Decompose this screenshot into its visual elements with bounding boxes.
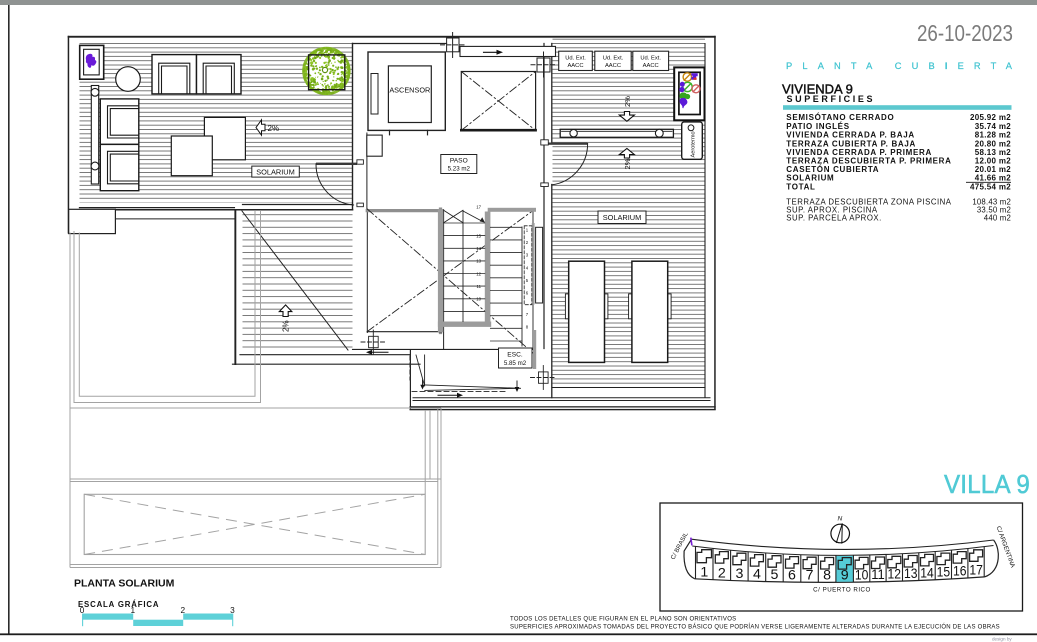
- svg-text:0: 0: [80, 605, 85, 615]
- svg-text:1: 1: [130, 605, 135, 615]
- svg-text:11: 11: [871, 567, 885, 583]
- svg-text:SUP. PARCELA APROX.: SUP. PARCELA APROX.: [786, 214, 881, 223]
- svg-text:Ud. Ext.: Ud. Ext.: [603, 55, 624, 61]
- svg-text:C/ PUERTO RICO: C/ PUERTO RICO: [813, 587, 871, 594]
- svg-text:PLANTA SOLARIUM: PLANTA SOLARIUM: [74, 578, 175, 590]
- svg-text:6: 6: [788, 567, 796, 583]
- svg-text:10: 10: [855, 567, 869, 583]
- svg-text:SOLARIUM: SOLARIUM: [786, 174, 834, 183]
- svg-text:12: 12: [476, 271, 481, 276]
- svg-text:ESCALA GRÁFICA: ESCALA GRÁFICA: [78, 600, 159, 609]
- svg-text:26-10-2023: 26-10-2023: [917, 20, 1013, 46]
- svg-text:TODOS LOS DETALLES QUE FIGURAN: TODOS LOS DETALLES QUE FIGURAN EN EL PLA…: [510, 617, 736, 623]
- svg-text:SOLARIUM: SOLARIUM: [256, 167, 295, 176]
- svg-text:5: 5: [771, 567, 779, 583]
- svg-text:10: 10: [476, 297, 481, 302]
- svg-text:5.23 m2: 5.23 m2: [448, 166, 471, 173]
- svg-text:4: 4: [753, 567, 761, 583]
- svg-text:AACC: AACC: [567, 63, 583, 69]
- svg-text:design by: design by: [992, 637, 1012, 642]
- svg-text:475.54 m2: 475.54 m2: [970, 183, 1011, 192]
- svg-text:2: 2: [718, 565, 726, 581]
- svg-text:440 m2: 440 m2: [984, 214, 1011, 223]
- svg-text:17: 17: [476, 204, 481, 209]
- svg-text:20.80 m2: 20.80 m2: [975, 139, 1011, 148]
- svg-text:5.85 m2: 5.85 m2: [504, 360, 527, 367]
- svg-text:2%: 2%: [268, 124, 280, 133]
- svg-text:1: 1: [700, 565, 708, 581]
- svg-text:2: 2: [180, 605, 185, 615]
- svg-text:CASETÓN CUBIERTA: CASETÓN CUBIERTA: [786, 165, 879, 174]
- svg-text:N: N: [838, 516, 843, 523]
- svg-text:15: 15: [937, 565, 951, 581]
- svg-text:8: 8: [823, 568, 831, 584]
- svg-text:SEMISÓTANO CERRADO: SEMISÓTANO CERRADO: [786, 113, 894, 122]
- svg-text:VIVIENDA CERRADA P. BAJA: VIVIENDA CERRADA P. BAJA: [786, 131, 915, 140]
- svg-text:12: 12: [888, 567, 902, 583]
- svg-text:2%: 2%: [623, 158, 632, 169]
- svg-text:Aerotermo: Aerotermo: [691, 131, 697, 157]
- svg-text:81.28 m2: 81.28 m2: [975, 131, 1011, 140]
- svg-text:PASO: PASO: [450, 158, 468, 165]
- svg-text:35.74 m2: 35.74 m2: [975, 122, 1011, 131]
- svg-text:17: 17: [969, 563, 983, 579]
- svg-text:Ud. Ext.: Ud. Ext.: [640, 55, 661, 61]
- svg-text:3: 3: [230, 605, 235, 615]
- svg-text:SUPERFICIES: SUPERFICIES: [787, 94, 873, 104]
- svg-text:TERRAZA CUBIERTA P. BAJA: TERRAZA CUBIERTA P. BAJA: [786, 139, 916, 148]
- svg-text:ESC.: ESC.: [507, 352, 523, 359]
- svg-text:2%: 2%: [623, 96, 632, 107]
- svg-text:SOLARIUM: SOLARIUM: [603, 213, 642, 222]
- svg-text:14: 14: [920, 565, 934, 581]
- svg-text:13: 13: [476, 259, 481, 264]
- svg-text:2%: 2%: [282, 320, 291, 332]
- svg-text:20.01 m2: 20.01 m2: [975, 165, 1011, 174]
- svg-text:9: 9: [841, 568, 849, 584]
- svg-text:13: 13: [904, 566, 918, 582]
- svg-text:PLANTA CUBIERTA: PLANTA CUBIERTA: [786, 61, 1013, 71]
- svg-text:16: 16: [953, 564, 967, 580]
- svg-text:11: 11: [477, 284, 482, 289]
- svg-text:41.66 m2: 41.66 m2: [975, 174, 1011, 183]
- svg-text:PATIO INGLÉS: PATIO INGLÉS: [786, 122, 849, 131]
- svg-text:3: 3: [735, 566, 743, 582]
- svg-text:14: 14: [476, 246, 481, 251]
- svg-text:Ud. Ext.: Ud. Ext.: [565, 55, 586, 61]
- svg-text:TOTAL: TOTAL: [786, 183, 815, 192]
- svg-text:15: 15: [476, 234, 481, 239]
- svg-text:AACC: AACC: [605, 63, 621, 69]
- svg-text:SUPERFICIES APROXIMADAS TOMADA: SUPERFICIES APROXIMADAS TOMADAS DEL PROY…: [510, 624, 1000, 631]
- svg-text:AACC: AACC: [643, 63, 659, 69]
- svg-text:VILLA 9: VILLA 9: [944, 469, 1030, 499]
- svg-text:205.92 m2: 205.92 m2: [970, 113, 1011, 122]
- svg-text:7: 7: [806, 568, 814, 584]
- svg-text:ASCENSOR: ASCENSOR: [389, 86, 430, 95]
